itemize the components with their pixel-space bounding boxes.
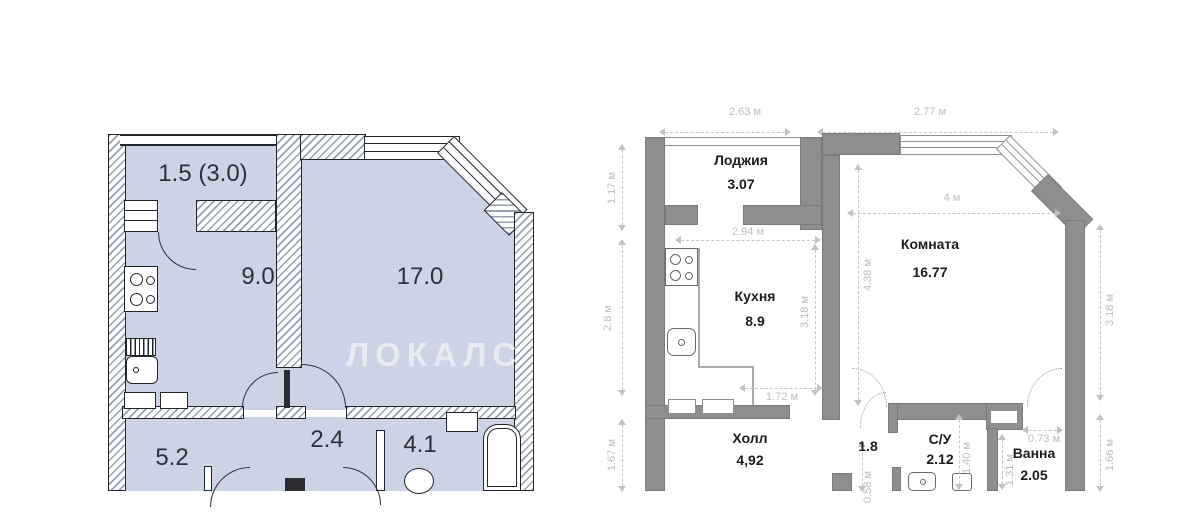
dim-room-width-line: [848, 213, 1060, 214]
wall-room-top: [822, 133, 900, 155]
stove-burner-icon: [685, 272, 693, 280]
wall-under-loggia-right: [743, 205, 822, 225]
vent-inset: [990, 410, 1018, 424]
floorplan-dimensioned: 2.63 м 2.77 м 2.94 м 4 м 1.72 м: [596, 100, 1200, 491]
wall-left: [108, 134, 126, 491]
cabinet-block: [160, 392, 188, 409]
counter-line: [698, 248, 700, 368]
wall-bottom-right: [346, 406, 516, 419]
room-label-wc: С/У: [910, 431, 970, 447]
dim-top-right-label: 2.77 м: [885, 106, 975, 118]
dim-right2-label: 1.66 м: [1104, 427, 1116, 483]
dim-left3-label: 1.67 м: [606, 427, 618, 483]
sink-drain-icon: [133, 367, 139, 373]
dim-bath-door-line: [1023, 430, 1062, 431]
dim-kitchen-width-line: [740, 388, 822, 389]
room-area-loggia: 3.07: [691, 176, 791, 192]
wc-sink-icon: [908, 472, 936, 491]
dim-left1-label: 1.17 м: [606, 160, 618, 216]
room-label-living: 17.0: [380, 263, 460, 291]
door-arc-room-bath: [1027, 368, 1062, 407]
room-label-bath: 4.1: [380, 431, 460, 459]
room-label-loggia: Лоджия: [691, 152, 791, 168]
wall-under-balcony: [196, 200, 276, 232]
floorplan-blueprint: 1.5 (3.0) 9.0 17.0 5.2 2.4 4.1 ЛОКАЛС: [108, 128, 538, 491]
balcony-side-window: [124, 200, 158, 232]
room-area-wc: 2.12: [910, 451, 970, 467]
dim-loggia-width-label: 2.94 м: [708, 226, 788, 238]
room-area-niche: 1.8: [848, 438, 888, 454]
room-label-room: Комната: [880, 236, 980, 252]
stove-burner-icon: [670, 270, 681, 281]
room-label-kitchen: 9.0: [218, 263, 298, 291]
loggia-window: [665, 137, 800, 146]
kitchen-cabinet-block: [668, 399, 696, 414]
room-label-balcony: 1.5 (3.0): [138, 160, 268, 188]
sink-drain-icon: [678, 339, 685, 346]
stove-burner-icon: [685, 256, 693, 264]
dim-left3-line: [622, 420, 623, 491]
wall-mid-vertical: [276, 134, 302, 368]
dim-room-height-line: [858, 165, 859, 405]
wall-right: [1065, 220, 1085, 491]
balcony-top-window: [120, 134, 280, 146]
wall-wc-bath-divider: [987, 428, 998, 491]
sink-icon: [126, 356, 158, 384]
stove-burner-icon: [670, 254, 681, 265]
wall-living-top: [300, 134, 366, 160]
dim-room-width-label: 4 м: [932, 192, 972, 204]
stove-icon: [124, 266, 158, 312]
bathtub-icon: [483, 424, 521, 491]
dim-loggia-width-line: [676, 240, 820, 241]
room-label-kitchen: Кухня: [705, 288, 805, 304]
wall-under-loggia-left: [665, 205, 698, 225]
stove-burner-icon: [130, 273, 143, 286]
room-label-hall: Холл: [700, 430, 800, 446]
dim-niche-label: 0.58 м: [862, 459, 874, 515]
wall-hall-stub: [832, 473, 852, 491]
stove-burner-icon: [146, 276, 155, 285]
dim-left1-line: [622, 145, 623, 230]
dim-left2-line: [622, 240, 623, 395]
dim-kitchen-height-line: [815, 245, 816, 395]
counter-line: [698, 366, 754, 368]
dim-left2-label: 2.8 м: [602, 290, 614, 346]
dim-right2-line: [1100, 415, 1101, 491]
room-label-hall: 5.2: [132, 444, 212, 472]
kitchen-cabinet-block: [702, 399, 734, 414]
stove-icon: [665, 248, 698, 286]
dishrack-icon: [126, 338, 156, 356]
room-label-corridor: 2.4: [287, 426, 367, 454]
sink-drain-icon: [920, 479, 926, 485]
wall-niche-stub: [892, 467, 901, 491]
dim-kitchen-width-label: 1.72 м: [742, 391, 822, 403]
door-leaf-bottom: [285, 478, 305, 491]
dim-right1-line: [1100, 225, 1101, 400]
room-top-window: [900, 135, 1012, 155]
wall-mid-vertical: [822, 155, 840, 420]
room-area-hall: 4,92: [700, 452, 800, 468]
room-area-bath: 2.05: [1000, 467, 1068, 483]
bath-niche-block: [446, 412, 478, 432]
wall-wc-stub: [888, 403, 898, 433]
toilet-icon: [404, 468, 434, 494]
dim-top-left-label: 2.63 м: [700, 106, 790, 118]
sink-icon: [667, 328, 696, 356]
cabinet-block: [124, 392, 156, 409]
dim-top-left-line: [660, 132, 790, 133]
stove-burner-icon: [146, 295, 155, 304]
stove-burner-icon: [130, 293, 143, 306]
door-leaf-corridor: [284, 370, 290, 408]
dim-right1-label: 3.18 м: [1104, 282, 1116, 338]
room-area-kitchen: 8.9: [705, 313, 805, 329]
dim-bath-door-label: 0.73 м: [1004, 433, 1084, 445]
wall-left: [645, 137, 665, 491]
room-area-room: 16.77: [880, 264, 980, 280]
room-label-bath: Ванна: [1000, 445, 1068, 461]
dim-room-height-label: 4.38 м: [862, 247, 874, 303]
watermark: ЛОКАЛС: [346, 336, 518, 374]
